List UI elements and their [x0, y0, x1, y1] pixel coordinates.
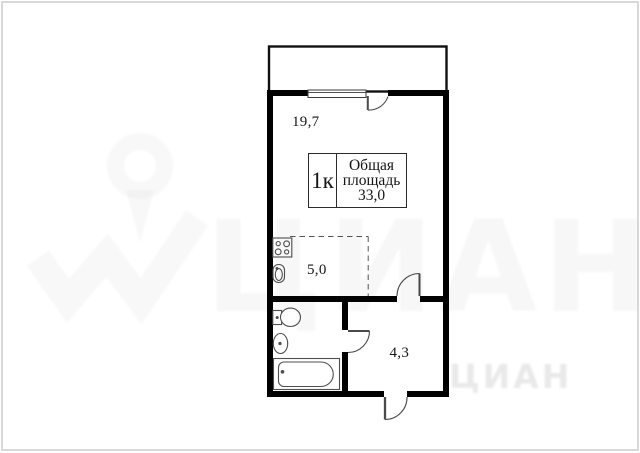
wall-mid-right: [420, 296, 443, 302]
toilet-icon: [273, 308, 301, 326]
stove-burner: [275, 249, 281, 255]
bathtub-icon: [274, 359, 340, 390]
stove-burner: [285, 250, 289, 254]
wall-bath-partition-top: [342, 302, 348, 330]
wall-mid-left: [273, 296, 397, 302]
rooms-count-label: 1к: [309, 154, 337, 207]
wall-left: [267, 90, 273, 397]
apartment-info-box: 1к Общая площадь 33,0: [308, 153, 407, 208]
balcony-door-arc: [368, 97, 388, 111]
bathtub-basin: [279, 362, 334, 387]
floor-plan-image: 19,7 5,0 4,3 1к Общая площадь 33,0 ЦИАН …: [0, 0, 640, 453]
wall-bottom-right: [407, 391, 449, 397]
total-area-block: Общая площадь 33,0: [337, 154, 406, 207]
kitchen-zone-boundary: [290, 237, 368, 297]
total-area-word2: площадь: [343, 173, 401, 188]
kitchen-sink-tap: [276, 268, 278, 270]
walls: [267, 90, 449, 397]
wall-right: [443, 90, 449, 397]
wall-top-left: [267, 90, 308, 96]
stove-burner: [284, 241, 290, 247]
balcony-wall: [269, 47, 447, 92]
window-frame: [308, 90, 366, 98]
entrance-door-arc: [385, 397, 407, 420]
total-area-word1: Общая: [349, 158, 394, 173]
wall-top-right: [388, 90, 449, 96]
bathroom-door-arc: [348, 331, 370, 353]
kitchen-sink-basin: [275, 269, 282, 281]
doors: [348, 96, 420, 420]
toilet-button: [276, 317, 278, 319]
kitchen-area-label: 5,0: [307, 262, 327, 279]
toilet-bowl: [281, 308, 301, 326]
living-room-door-arc: [397, 274, 420, 297]
bathtub-drain: [281, 371, 284, 374]
kitchen-sink-icon: [273, 265, 285, 283]
wash-basin-drain: [279, 342, 281, 344]
stove-body: [273, 238, 292, 257]
floor-plan-drawing: [0, 0, 640, 453]
stove-burner: [276, 242, 280, 246]
hallway-area-label: 4,3: [390, 345, 410, 362]
wash-basin-icon: [273, 334, 287, 354]
total-area-value: 33,0: [358, 188, 385, 203]
wall-bottom-left: [267, 391, 384, 397]
wall-bath-partition-bottom: [342, 352, 348, 391]
living-room-area-label: 19,7: [292, 114, 319, 131]
stove-icon: [273, 238, 292, 257]
window-icon: [308, 90, 366, 98]
